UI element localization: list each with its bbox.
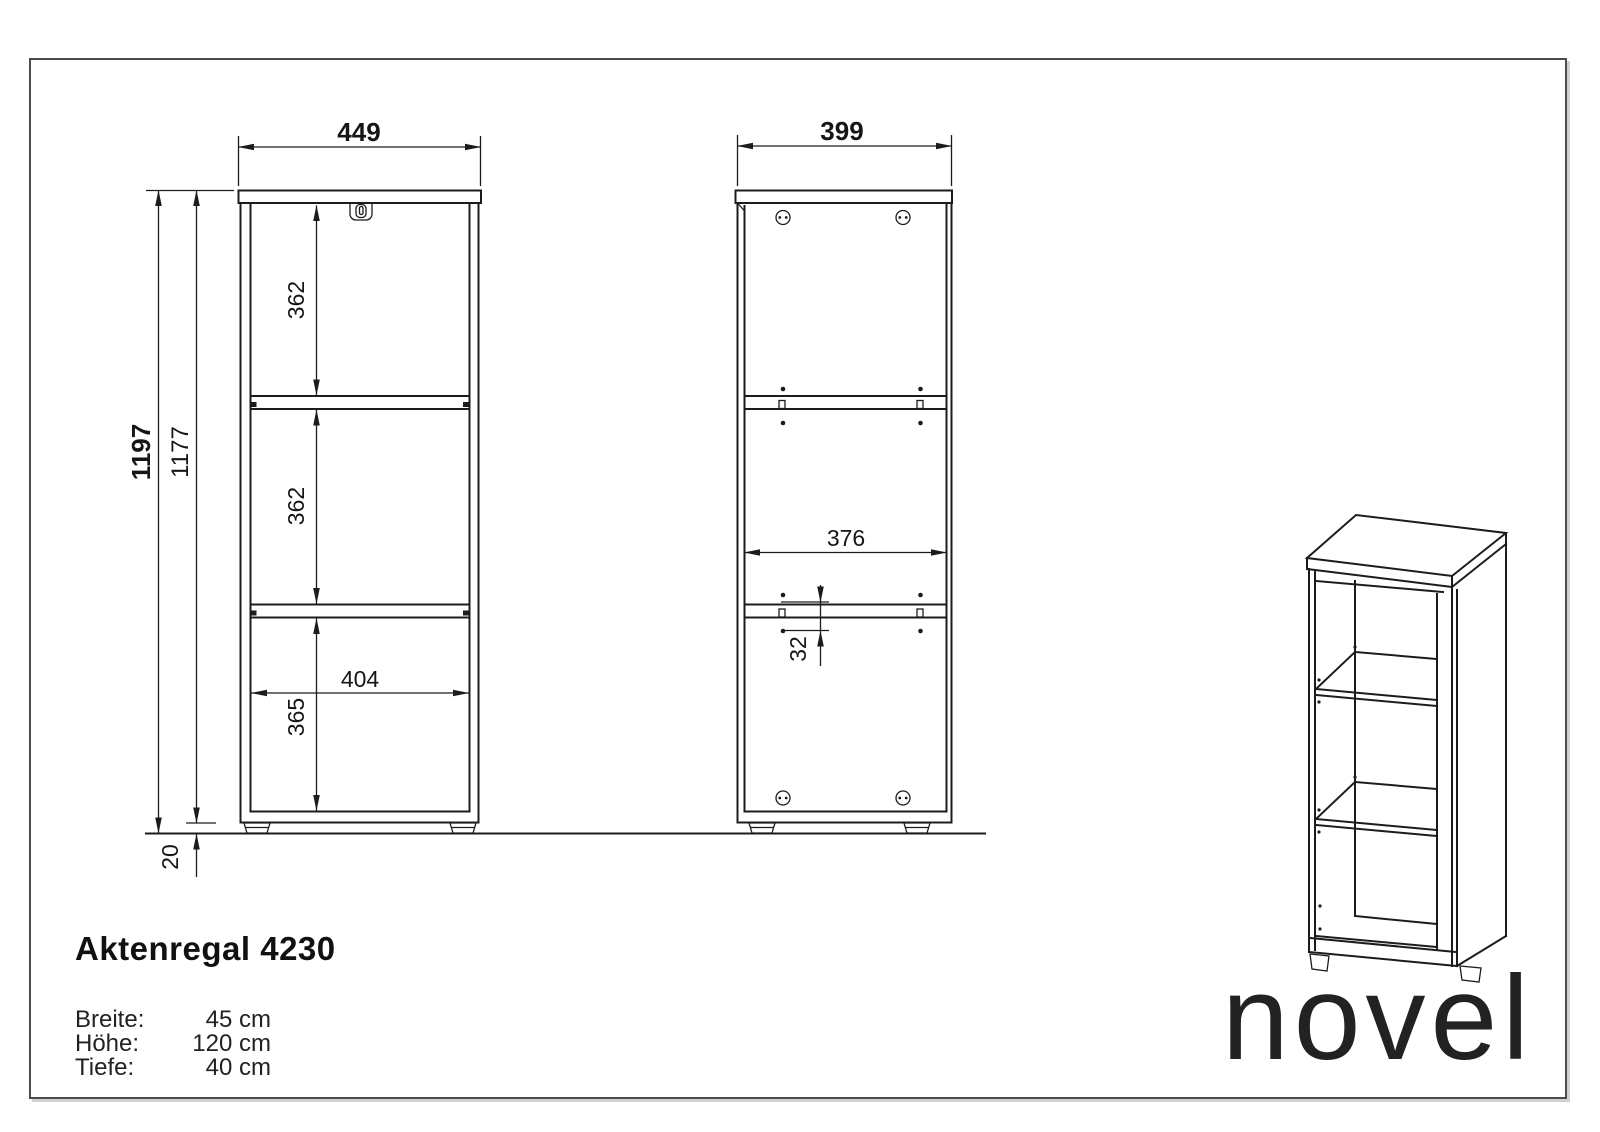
dim-hole-spacing: 32 <box>781 585 829 666</box>
spec-row-height: Höhe: 120 cm <box>75 1032 336 1056</box>
dim-inner-depth: 376 <box>745 525 947 561</box>
perspective-top-panel <box>1307 515 1506 587</box>
side-top-panel <box>736 191 953 204</box>
spec-row-depth: Tiefe: 40 cm <box>75 1056 336 1080</box>
spec-label-width: Breite: <box>75 1008 183 1032</box>
dim-front-width: 449 <box>239 117 481 186</box>
dim-label-compartment-bottom: 365 <box>283 698 309 736</box>
shelf-pin-holes <box>781 387 923 634</box>
product-title: Aktenregal 4230 <box>75 930 336 968</box>
drawing-sheet: 449 1197 1177 20 362 362 <box>0 0 1600 1132</box>
dim-label-height-total: 1197 <box>126 424 156 480</box>
side-view-drawing: 399 376 32 <box>736 116 953 833</box>
brand-logo: novel <box>1222 958 1534 1078</box>
dim-compartment-bottom: 365 <box>283 619 317 811</box>
dim-height-body: 1177 <box>167 191 216 824</box>
dim-inner-width: 404 <box>252 666 469 693</box>
dim-label-front-width: 449 <box>337 117 380 147</box>
dim-label-inner-width: 404 <box>341 666 380 692</box>
dim-label-depth: 399 <box>820 116 863 146</box>
spec-value-width: 45 cm <box>183 1008 271 1032</box>
cable-grommet <box>350 203 372 220</box>
dim-label-height-body: 1177 <box>167 426 194 478</box>
dim-compartment-top: 362 <box>283 206 317 396</box>
front-top-panel <box>239 191 482 204</box>
dim-label-compartment-top: 362 <box>283 281 309 319</box>
spec-row-width: Breite: 45 cm <box>75 1008 336 1032</box>
spec-label-height: Höhe: <box>75 1032 183 1056</box>
perspective-shelves <box>1316 645 1437 930</box>
title-block: Aktenregal 4230 Breite: 45 cm Höhe: 120 … <box>75 930 336 1080</box>
perspective-view-drawing <box>1307 515 1506 982</box>
spec-label-depth: Tiefe: <box>75 1056 183 1080</box>
front-feet <box>244 823 476 833</box>
dim-label-foot-height: 20 <box>157 844 183 870</box>
perspective-body <box>1309 544 1506 966</box>
front-bottom-panel <box>241 812 479 823</box>
side-panel-outline <box>738 203 952 823</box>
dim-height-total: 1197 <box>126 191 234 834</box>
spec-list: Breite: 45 cm Höhe: 120 cm Tiefe: 40 cm <box>75 1008 336 1080</box>
front-view-drawing: 449 1197 1177 20 362 362 <box>126 117 481 877</box>
dim-label-compartment-middle: 362 <box>283 487 309 525</box>
perspective-interior <box>1316 581 1443 949</box>
spec-value-height: 120 cm <box>183 1032 271 1056</box>
spec-value-depth: 40 cm <box>183 1056 271 1080</box>
dim-foot-height: 20 <box>157 834 197 877</box>
dim-depth: 399 <box>738 116 952 186</box>
dim-compartment-middle: 362 <box>283 410 317 604</box>
cam-screw-holes <box>776 211 910 806</box>
dim-label-inner-depth: 376 <box>827 525 865 551</box>
side-feet <box>749 823 930 833</box>
side-shelf-lines <box>745 396 947 618</box>
dim-label-hole-spacing: 32 <box>785 636 811 662</box>
front-side-panels <box>241 203 479 823</box>
